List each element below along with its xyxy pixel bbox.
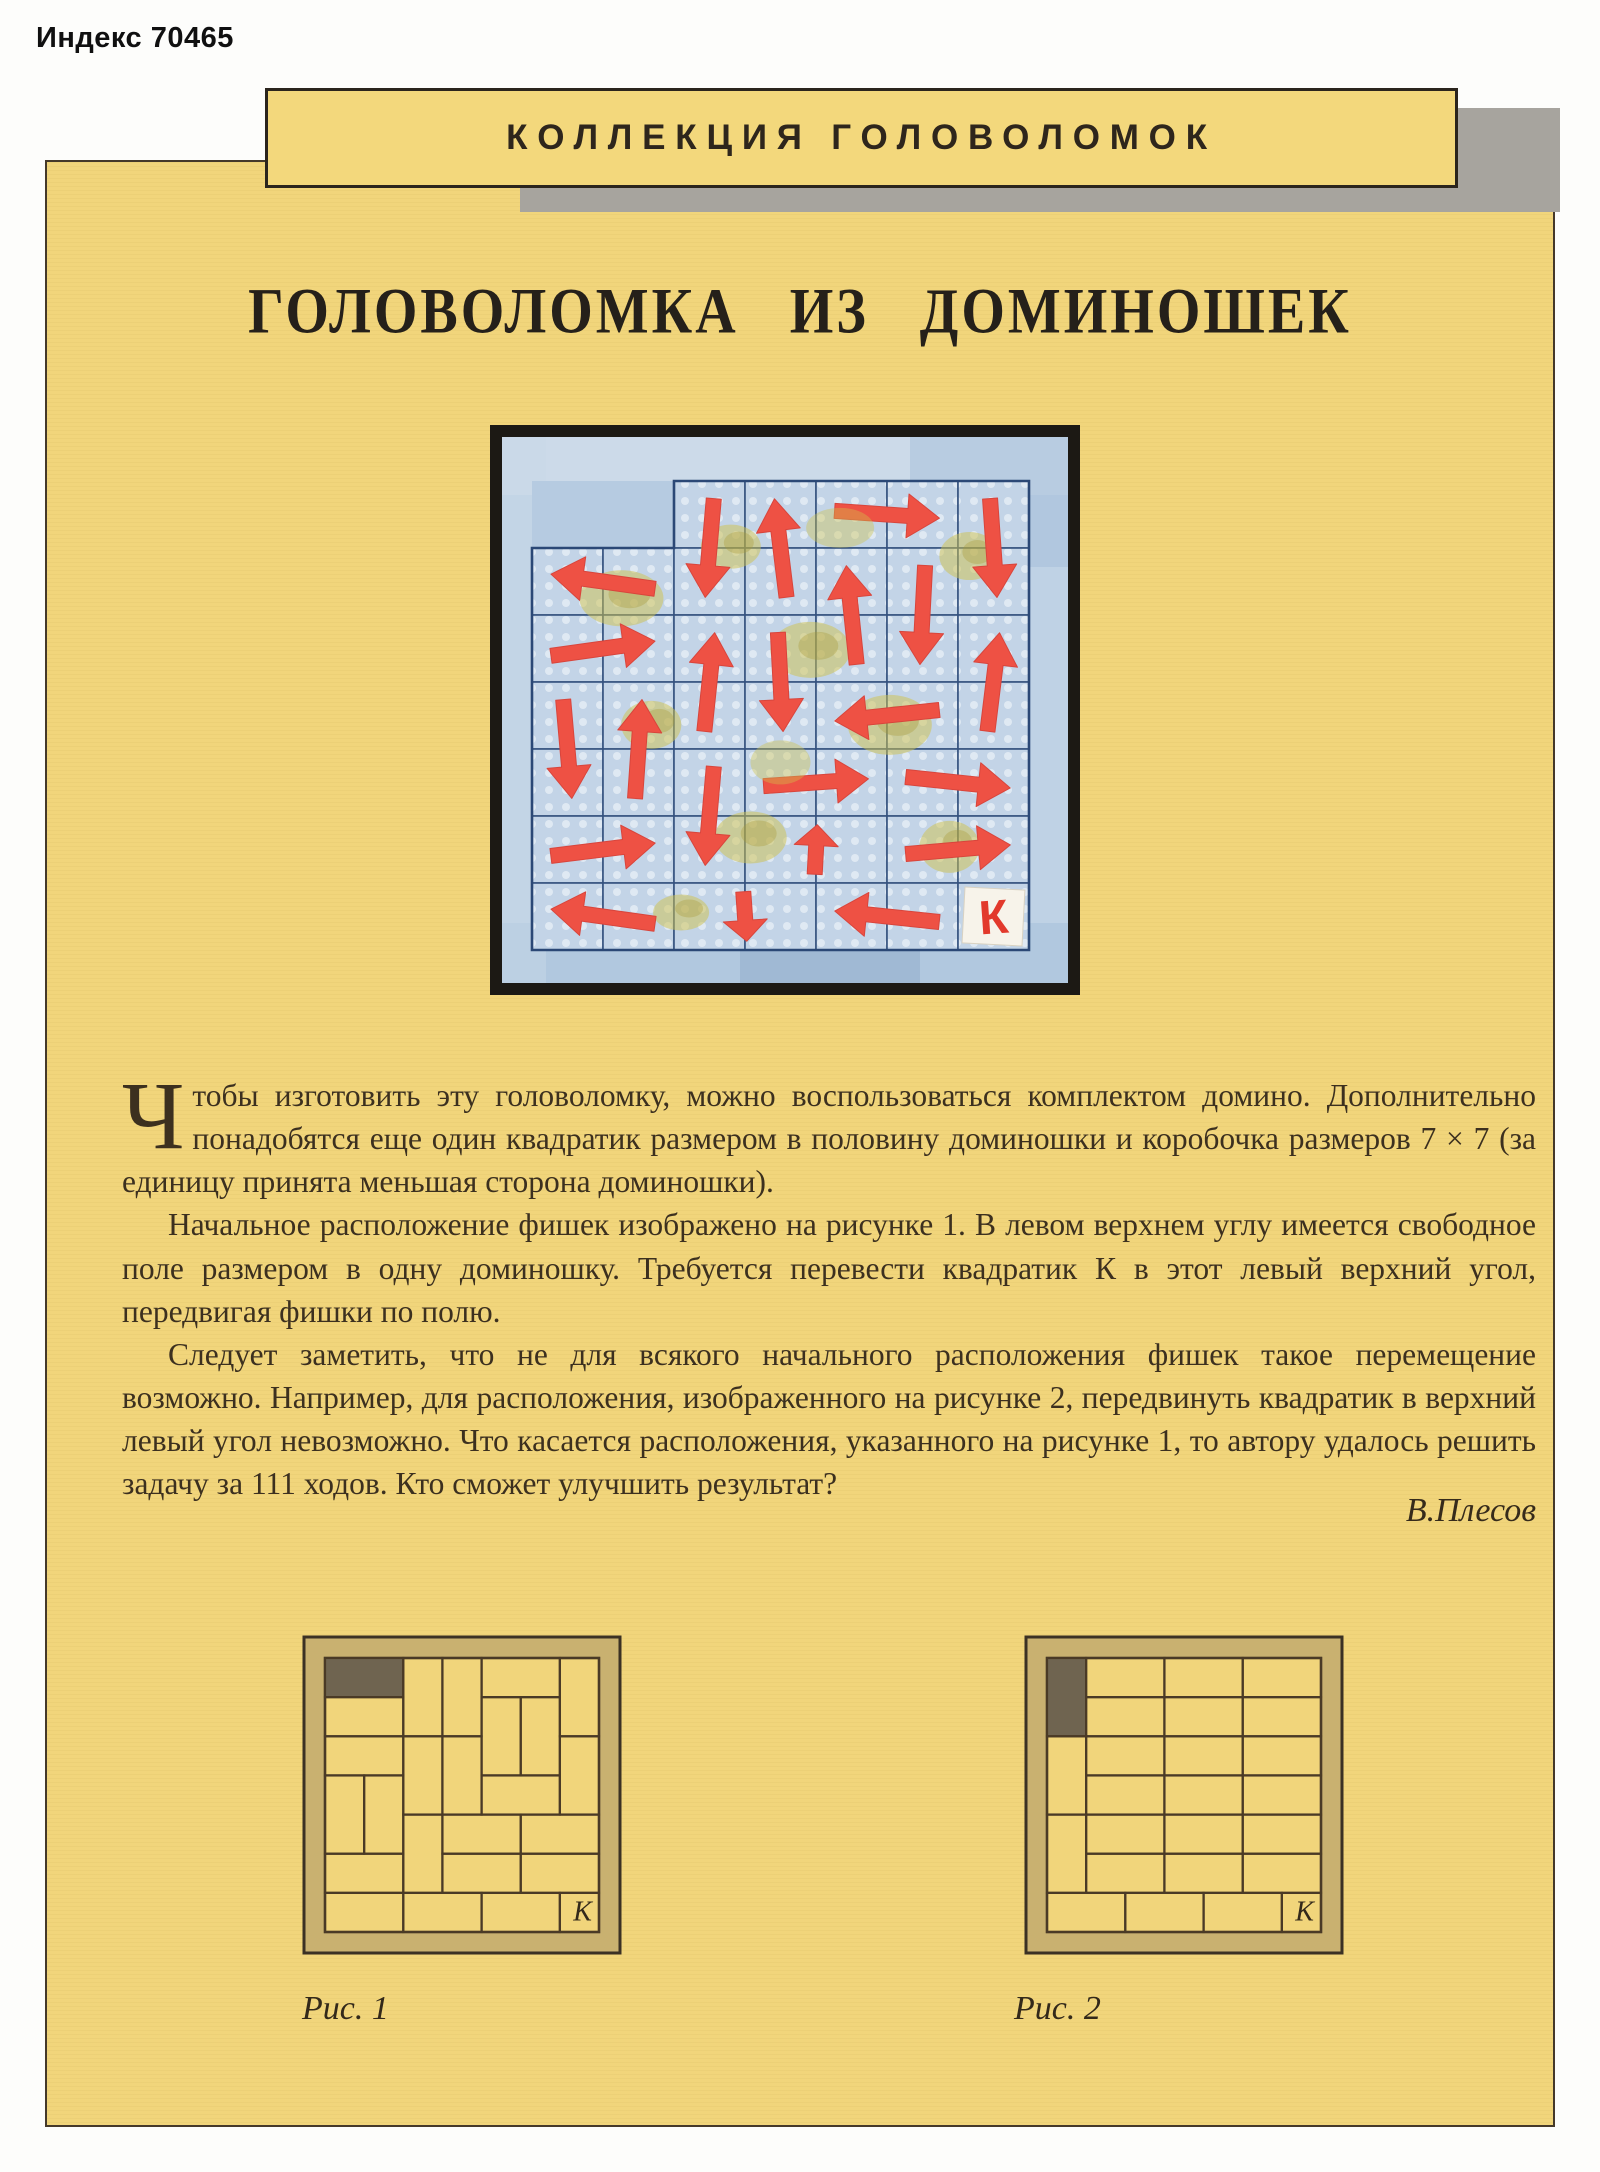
paragraph-3: Следует заметить, что не для всякого нач…	[122, 1333, 1536, 1506]
k-label: К	[977, 890, 1011, 945]
paint-stain	[751, 740, 811, 784]
free-space	[603, 481, 674, 548]
figure-svg: К	[1024, 1635, 1344, 1955]
index-label: Индекс 70465	[36, 22, 234, 55]
figure-2-diagram: К	[1024, 1635, 1344, 1955]
figure-svg: К	[302, 1635, 622, 1955]
free-space	[325, 1658, 403, 1697]
article-page: ГОЛОВОЛОМКА ИЗ ДОМИНОШЕК К Чтобы изготов…	[45, 160, 1555, 2127]
paragraph-1: Чтобы изготовить эту головоломку, можно …	[122, 1074, 1536, 1203]
k-label: К	[572, 1896, 593, 1927]
puzzle-illustration: К	[490, 425, 1080, 995]
free-space	[532, 481, 603, 548]
article-title: ГОЛОВОЛОМКА ИЗ ДОМИНОШЕК	[47, 275, 1553, 349]
free-space	[1047, 1658, 1086, 1736]
paragraph-1-text: тобы изготовить эту головоломку, можно в…	[122, 1078, 1536, 1199]
tile-cell	[816, 816, 887, 883]
series-banner-title: КОЛЛЕКЦИЯ ГОЛОВОЛОМОК	[506, 118, 1217, 158]
k-label: К	[1294, 1896, 1315, 1927]
paint-stain	[675, 899, 703, 917]
watercolor-wash	[740, 950, 920, 983]
paint-stain	[741, 820, 777, 846]
k-square: К	[962, 887, 1025, 948]
figure-2-caption: Рис. 2	[1014, 1990, 1101, 2028]
figure-1-caption: Рис. 1	[302, 1990, 389, 2028]
paint-stain	[798, 632, 838, 660]
puzzle-photo-svg: К	[490, 425, 1080, 995]
dropcap-letter: Ч	[122, 1074, 192, 1152]
paint-stain	[806, 508, 874, 548]
series-banner: КОЛЛЕКЦИЯ ГОЛОВОЛОМОК	[265, 88, 1458, 188]
scanned-magazine-page: Индекс 70465 КОЛЛЕКЦИЯ ГОЛОВОЛОМОК ГОЛОВ…	[0, 0, 1600, 2172]
figure-tray	[1047, 1658, 1321, 1932]
paint-stain	[724, 532, 754, 554]
author-signature: В.Плесов	[122, 1492, 1536, 1530]
tile-cell	[745, 883, 816, 950]
paragraph-2: Начальное расположение фишек изображено …	[122, 1203, 1536, 1332]
figure-tray	[325, 1658, 599, 1932]
article-body: Чтобы изготовить эту головоломку, можно …	[122, 1074, 1536, 1505]
figure-1-diagram: К	[302, 1635, 622, 1955]
